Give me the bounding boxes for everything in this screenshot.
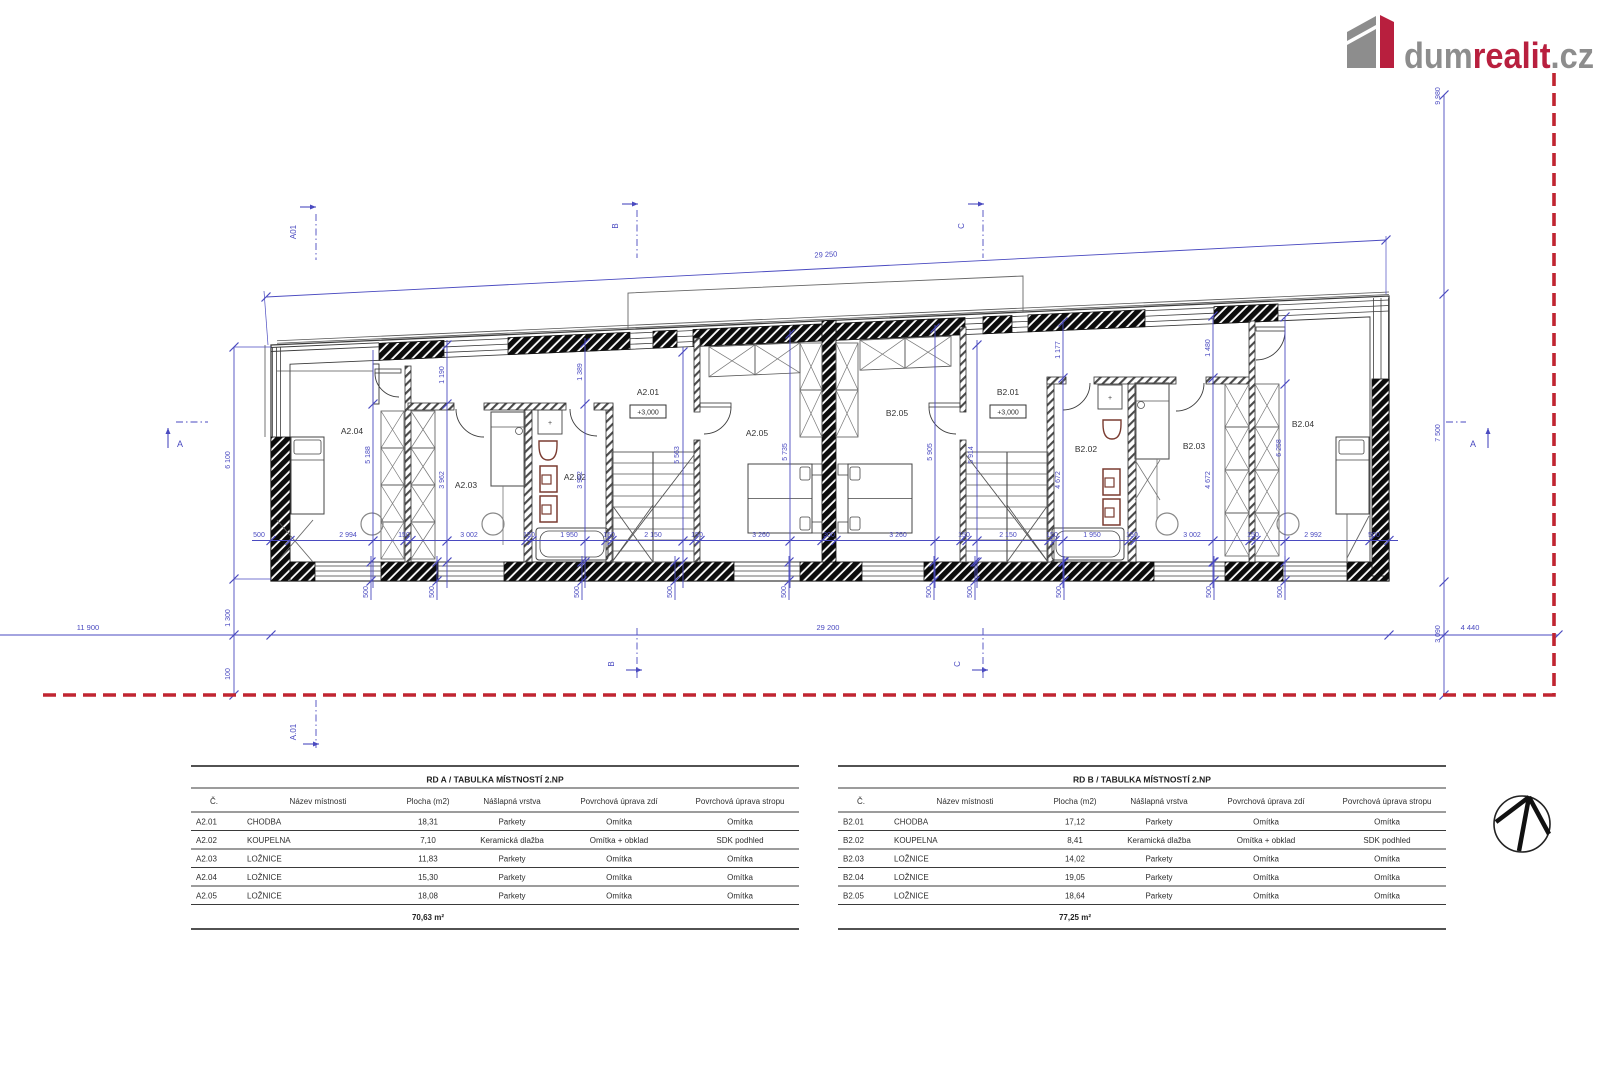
svg-text:B: B [607, 661, 616, 666]
svg-text:5 735: 5 735 [782, 443, 789, 461]
svg-text:150: 150 [1126, 532, 1138, 539]
svg-text:Plocha (m2): Plocha (m2) [406, 797, 449, 806]
svg-text:4 672: 4 672 [1205, 471, 1212, 489]
svg-text:14,02: 14,02 [1065, 855, 1086, 864]
svg-text:500: 500 [363, 586, 370, 598]
svg-text:KOUPELNA: KOUPELNA [894, 836, 938, 845]
svg-text:5 914: 5 914 [968, 446, 975, 464]
svg-text:Plocha (m2): Plocha (m2) [1053, 797, 1096, 806]
svg-text:B2.03: B2.03 [1183, 441, 1205, 451]
svg-text:Omítka + obklad: Omítka + obklad [1237, 836, 1295, 845]
svg-text:1 389: 1 389 [577, 363, 584, 381]
svg-text:6 100: 6 100 [225, 451, 232, 469]
svg-text:RD B / TABULKA MÍSTNOSTÍ 2.NP: RD B / TABULKA MÍSTNOSTÍ 2.NP [1073, 775, 1211, 785]
svg-text:500: 500 [1056, 586, 1063, 598]
svg-text:B2.02: B2.02 [1075, 444, 1097, 454]
svg-text:500: 500 [1206, 586, 1213, 598]
svg-text:1 177: 1 177 [1055, 341, 1062, 359]
svg-text:Povrchová úprava zdí: Povrchová úprava zdí [1227, 797, 1305, 806]
svg-text:Omítka: Omítka [1374, 855, 1400, 864]
svg-text:+: + [1108, 395, 1112, 402]
svg-text:70,63 m²: 70,63 m² [412, 913, 444, 922]
svg-text:Parkety: Parkety [1145, 873, 1172, 882]
svg-text:Omítka: Omítka [727, 818, 753, 827]
svg-text:Omítka: Omítka [727, 873, 753, 882]
svg-text:19,05: 19,05 [1065, 873, 1086, 882]
svg-text:B: B [611, 223, 620, 228]
svg-text:A2.04: A2.04 [196, 873, 217, 882]
svg-text:Omítka: Omítka [727, 892, 753, 901]
svg-text:100: 100 [225, 668, 232, 680]
svg-text:29 250: 29 250 [814, 249, 837, 259]
svg-text:LOŽNICE: LOŽNICE [247, 873, 282, 882]
svg-text:LOŽNICE: LOŽNICE [247, 892, 282, 901]
svg-text:Povrchová úprava zdí: Povrchová úprava zdí [580, 797, 658, 806]
svg-text:3 090: 3 090 [1435, 625, 1442, 643]
svg-text:LOŽNICE: LOŽNICE [894, 855, 929, 864]
svg-text:2 992: 2 992 [1304, 532, 1322, 539]
svg-text:1 950: 1 950 [1083, 532, 1101, 539]
svg-text:Parkety: Parkety [1145, 855, 1172, 864]
svg-text:B2.04: B2.04 [843, 873, 864, 882]
svg-text:Keramická dlažba: Keramická dlažba [1127, 836, 1191, 845]
svg-text:3 962: 3 962 [577, 471, 584, 489]
svg-text:Omítka: Omítka [1374, 818, 1400, 827]
svg-text:SDK podhled: SDK podhled [716, 836, 763, 845]
svg-text:7,10: 7,10 [420, 836, 436, 845]
svg-text:2 150: 2 150 [999, 532, 1017, 539]
svg-text:Parkety: Parkety [498, 855, 525, 864]
svg-text:5 188: 5 188 [365, 446, 372, 464]
svg-text:LOŽNICE: LOŽNICE [894, 892, 929, 901]
svg-text:2 150: 2 150 [644, 532, 662, 539]
svg-text:4 440: 4 440 [1461, 623, 1480, 632]
svg-text:500: 500 [967, 586, 974, 598]
svg-text:Omítka: Omítka [1374, 873, 1400, 882]
svg-text:Omítka: Omítka [606, 818, 632, 827]
svg-text:A2.05: A2.05 [746, 428, 768, 438]
svg-text:A2.02: A2.02 [196, 836, 217, 845]
svg-text:150: 150 [523, 532, 535, 539]
svg-text:5 905: 5 905 [927, 443, 934, 461]
svg-text:SDK podhled: SDK podhled [1363, 836, 1410, 845]
svg-text:A2.03: A2.03 [196, 855, 217, 864]
svg-text:LOŽNICE: LOŽNICE [894, 873, 929, 882]
svg-text:7 500: 7 500 [1435, 424, 1442, 442]
svg-text:Č.: Č. [857, 797, 865, 806]
svg-text:500: 500 [1277, 586, 1284, 598]
svg-text:15,30: 15,30 [418, 873, 439, 882]
svg-text:1 190: 1 190 [439, 366, 446, 384]
svg-text:18,31: 18,31 [418, 818, 439, 827]
svg-text:A2.01: A2.01 [637, 387, 659, 397]
svg-text:Omítka: Omítka [1374, 892, 1400, 901]
svg-text:18,08: 18,08 [418, 892, 439, 901]
svg-text:1 480: 1 480 [1205, 339, 1212, 357]
svg-text:Povrchová úprava stropu: Povrchová úprava stropu [1343, 797, 1432, 806]
svg-text:9 980: 9 980 [1435, 87, 1442, 105]
svg-text:B2.01: B2.01 [997, 387, 1019, 397]
svg-text:150: 150 [691, 532, 703, 539]
svg-text:dumrealit.cz: dumrealit.cz [1404, 35, 1594, 76]
svg-text:B2.03: B2.03 [843, 855, 864, 864]
svg-text:500: 500 [429, 586, 436, 598]
svg-text:C: C [957, 223, 966, 229]
svg-text:3 260: 3 260 [752, 532, 770, 539]
svg-text:Omítka: Omítka [1253, 873, 1279, 882]
svg-text:1 300: 1 300 [225, 609, 232, 627]
svg-text:150: 150 [603, 532, 615, 539]
svg-text:A2.05: A2.05 [196, 892, 217, 901]
svg-text:3 962: 3 962 [439, 471, 446, 489]
svg-text:1 950: 1 950 [560, 532, 578, 539]
svg-text:3 002: 3 002 [460, 532, 478, 539]
svg-text:Název místnosti: Název místnosti [290, 797, 347, 806]
svg-text:C: C [953, 661, 962, 667]
svg-text:3 260: 3 260 [889, 532, 907, 539]
svg-text:A2.03: A2.03 [455, 480, 477, 490]
svg-text:RD A / TABULKA MÍSTNOSTÍ 2.NP: RD A / TABULKA MÍSTNOSTÍ 2.NP [426, 775, 564, 785]
svg-text:B2.05: B2.05 [886, 408, 908, 418]
svg-text:Parkety: Parkety [498, 818, 525, 827]
svg-text:Nášlapná vrstva: Nášlapná vrstva [1130, 797, 1188, 806]
svg-text:Povrchová úprava stropu: Povrchová úprava stropu [696, 797, 785, 806]
svg-text:17,12: 17,12 [1065, 818, 1086, 827]
svg-text:150: 150 [1046, 532, 1058, 539]
svg-text:Č.: Č. [210, 797, 218, 806]
svg-text:11,83: 11,83 [418, 855, 438, 864]
svg-text:500: 500 [926, 586, 933, 598]
svg-text:Parkety: Parkety [498, 892, 525, 901]
svg-text:Omítka: Omítka [606, 855, 632, 864]
svg-text:Omítka: Omítka [606, 892, 632, 901]
svg-text:Omítka: Omítka [606, 873, 632, 882]
svg-text:+3,000: +3,000 [997, 410, 1019, 417]
svg-text:Název místnosti: Název místnosti [937, 797, 994, 806]
svg-text:Omítka: Omítka [1253, 855, 1279, 864]
svg-text:Omítka: Omítka [1253, 818, 1279, 827]
svg-text:Keramická dlažba: Keramická dlažba [480, 836, 544, 845]
svg-text:+3,000: +3,000 [637, 410, 659, 417]
svg-text:Omítka: Omítka [1253, 892, 1279, 901]
svg-text:150: 150 [958, 532, 970, 539]
svg-text:18,64: 18,64 [1065, 892, 1086, 901]
svg-text:150: 150 [398, 532, 410, 539]
svg-text:A: A [177, 439, 183, 449]
svg-text:Parkety: Parkety [1145, 892, 1172, 901]
svg-text:Omítka + obklad: Omítka + obklad [590, 836, 648, 845]
svg-text:A2.01: A2.01 [196, 818, 217, 827]
svg-text:4 672: 4 672 [1055, 471, 1062, 489]
svg-text:LOŽNICE: LOŽNICE [247, 855, 282, 864]
svg-text:500: 500 [574, 586, 581, 598]
svg-text:11 900: 11 900 [77, 623, 99, 632]
svg-text:150: 150 [1247, 532, 1259, 539]
svg-text:A.01: A.01 [289, 723, 298, 740]
svg-text:CHODBA: CHODBA [247, 818, 282, 827]
svg-text:+: + [548, 420, 552, 427]
svg-text:Omítka: Omítka [727, 855, 753, 864]
svg-text:77,25 m²: 77,25 m² [1059, 913, 1091, 922]
svg-text:500: 500 [253, 532, 265, 539]
svg-text:500: 500 [1368, 532, 1380, 539]
svg-text:3 002: 3 002 [1183, 532, 1201, 539]
svg-text:300: 300 [823, 532, 835, 539]
svg-text:A01: A01 [289, 224, 298, 239]
svg-text:B2.05: B2.05 [843, 892, 864, 901]
svg-text:B2.04: B2.04 [1292, 419, 1314, 429]
svg-text:5 563: 5 563 [674, 446, 681, 464]
svg-text:500: 500 [781, 586, 788, 598]
svg-text:A2.04: A2.04 [341, 426, 363, 436]
svg-text:B2.02: B2.02 [843, 836, 864, 845]
svg-text:6 258: 6 258 [1276, 439, 1283, 457]
svg-text:A: A [1470, 439, 1476, 449]
svg-text:29 200: 29 200 [817, 623, 840, 632]
svg-text:500: 500 [667, 586, 674, 598]
svg-text:2 994: 2 994 [339, 532, 357, 539]
svg-text:8,41: 8,41 [1067, 836, 1083, 845]
svg-text:Parkety: Parkety [1145, 818, 1172, 827]
svg-text:Parkety: Parkety [498, 873, 525, 882]
svg-text:KOUPELNA: KOUPELNA [247, 836, 291, 845]
svg-text:B2.01: B2.01 [843, 818, 864, 827]
svg-text:CHODBA: CHODBA [894, 818, 929, 827]
svg-text:Nášlapná vrstva: Nášlapná vrstva [483, 797, 541, 806]
